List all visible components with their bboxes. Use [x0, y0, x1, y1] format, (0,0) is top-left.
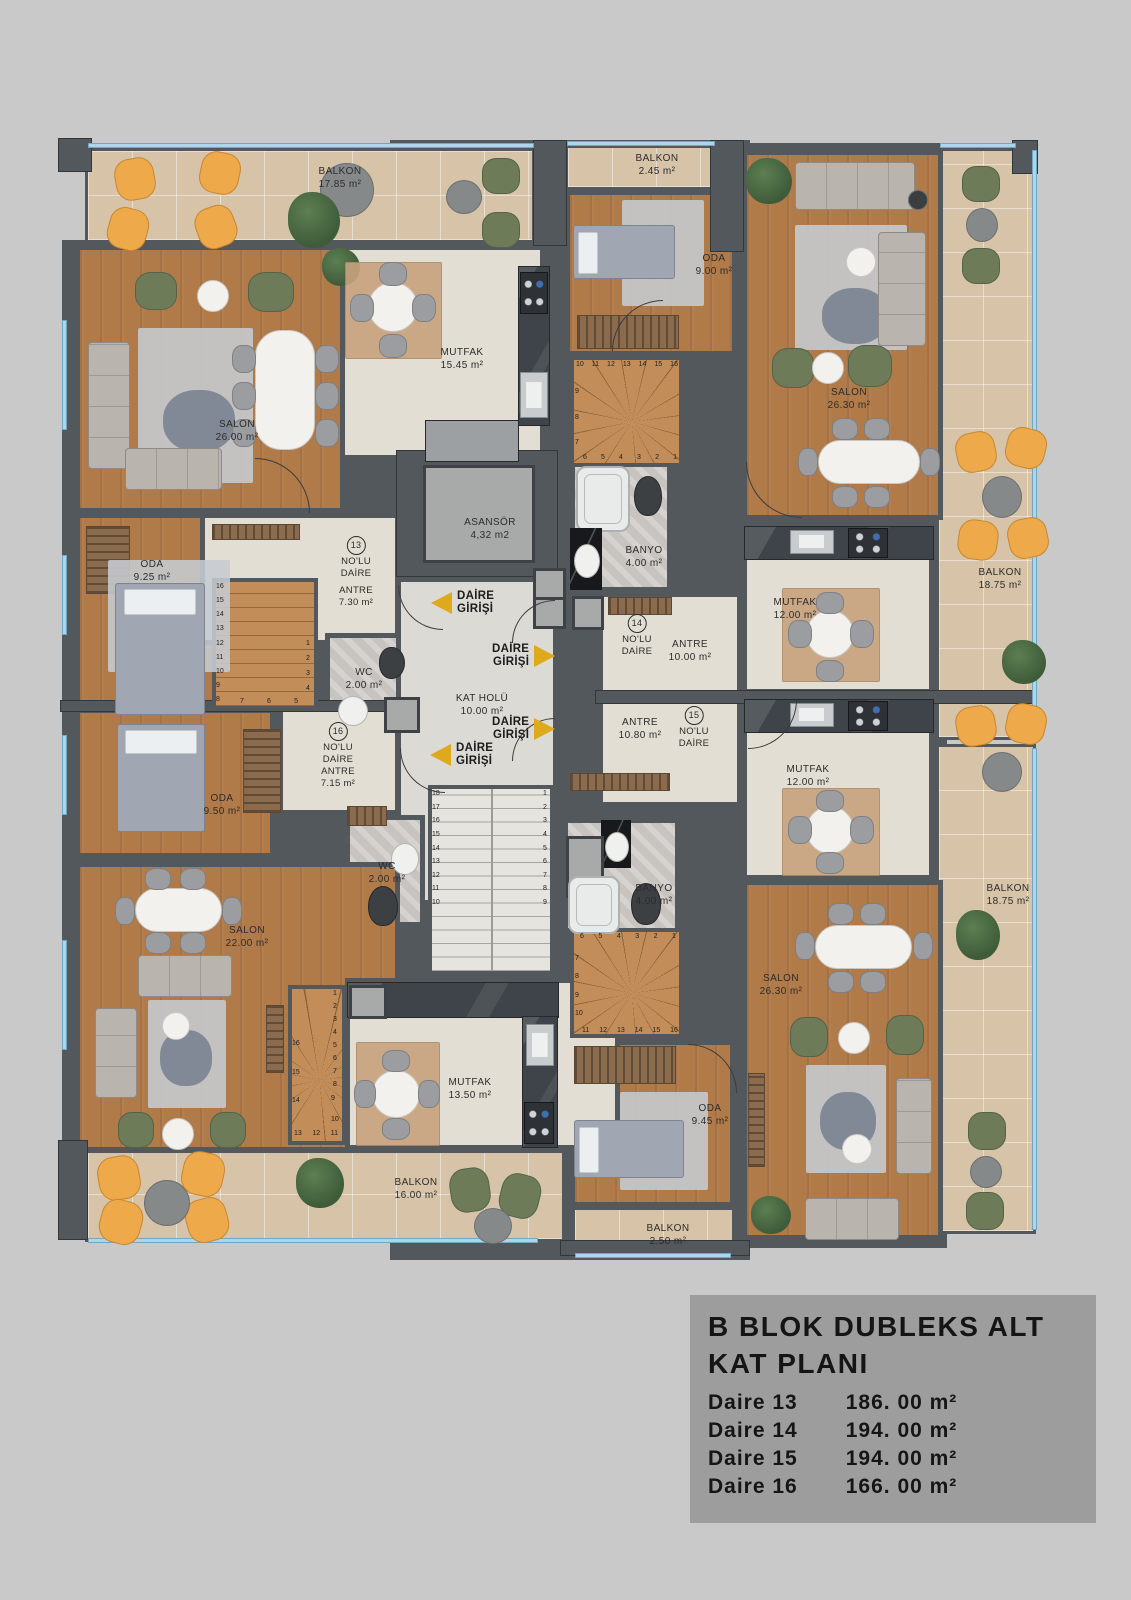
dining-chair: [379, 334, 407, 358]
stair-step-number: 11: [216, 654, 224, 661]
dining-chair: [315, 345, 339, 373]
stair-step-number: 8: [333, 1081, 337, 1088]
dining-chair: [832, 418, 858, 440]
label-salon-16: SALON22.00 m²: [226, 924, 269, 950]
label-kitchen-13: MUTFAK15.45 m²: [441, 346, 484, 372]
dining-chair: [864, 418, 890, 440]
stair-numbers: 10111213141516: [576, 361, 678, 368]
console: [266, 1005, 284, 1073]
label-balcony-13: BALKON17.85 m²: [319, 165, 362, 191]
stair-step-number: 8: [575, 973, 583, 980]
wall-pillar: [58, 1140, 88, 1240]
stair-step-number: 15: [652, 1027, 660, 1034]
dining-chair: [379, 262, 407, 286]
armchair-green: [248, 272, 294, 312]
label-bedroom-13: ODA9.25 m²: [134, 558, 171, 584]
stair-numbers: 910: [331, 1095, 339, 1123]
dining-chair: [145, 868, 171, 890]
rug: [160, 1030, 212, 1086]
washbasin: [574, 544, 600, 578]
sink: [526, 1024, 554, 1066]
legend-table: Daire 13186. 00 m² Daire 14194. 00 m² Da…: [708, 1389, 957, 1501]
bed: [117, 724, 205, 832]
label-wc-16: WC2.00 m²: [369, 860, 406, 886]
label-unit-14: 14 NO'LUDAİRE: [622, 614, 653, 658]
washbasin: [605, 832, 629, 862]
stair-numbers-main-left: 181716151413121110: [432, 790, 440, 906]
duct-shaft: [572, 596, 604, 630]
stair-step-number: 13: [432, 858, 440, 865]
armchair-green: [968, 1112, 1006, 1150]
wall-pillar: [58, 138, 92, 172]
stair-numbers: 161514: [292, 1040, 300, 1104]
entrance-arrow-icon: [430, 744, 451, 766]
bathtub: [568, 876, 620, 934]
label-wc-13: WC2.00 m²: [346, 666, 383, 692]
dining-chair: [913, 932, 933, 960]
window: [567, 141, 715, 146]
dining-table: [135, 888, 222, 932]
dining-table: [815, 925, 912, 969]
dining-chair: [180, 868, 206, 890]
round-table: [970, 1156, 1002, 1188]
stair-step-number: 5: [333, 1042, 337, 1049]
toilet: [379, 647, 405, 679]
window: [62, 555, 67, 635]
dining-chair: [828, 903, 854, 925]
stair-step-number: 12: [607, 361, 615, 368]
stair-step-number: 9: [575, 992, 583, 999]
stair-step-number: 13: [623, 361, 631, 368]
sofa: [896, 1078, 932, 1174]
label-bathroom-15: BANYO4.00 m²: [635, 882, 672, 908]
kitchen-table: [372, 1070, 420, 1118]
stair-numbers: 1615141312111098: [216, 583, 224, 703]
label-hall-15: ANTRE10.80 m²: [619, 716, 662, 742]
sofa: [125, 448, 222, 490]
stair-step-number: 6: [333, 1055, 337, 1062]
stair-step-number: 7: [333, 1068, 337, 1075]
entrance-arrow-icon: [431, 592, 452, 614]
armchair-green: [886, 1015, 924, 1055]
apartment-entrance-15: DAİREGİRİŞİ: [492, 716, 555, 742]
stair-step-number: 4: [617, 933, 621, 940]
stair-step-number: 7: [543, 872, 547, 879]
stair-step-number: 2: [306, 655, 310, 662]
stair-step-number: 14: [639, 361, 647, 368]
stair-step-number: 10: [432, 899, 440, 906]
apartment-entrance-16: DAİREGİRİŞİ: [430, 742, 493, 768]
stair-step-number: 16: [432, 817, 440, 824]
wall-pillar: [533, 140, 567, 246]
round-table: [446, 180, 482, 214]
dining-table: [255, 330, 315, 450]
armchair-green: [210, 1112, 246, 1148]
wardrobe: [574, 1046, 676, 1084]
sink: [790, 530, 834, 554]
dining-chair: [828, 971, 854, 993]
stair-step-number: 2: [655, 454, 659, 461]
toilet: [368, 886, 398, 926]
stair-step-number: 4: [619, 454, 623, 461]
stair-numbers: 78910: [575, 955, 583, 1017]
stair-step-number: 11: [432, 885, 440, 892]
dining-chair: [860, 903, 886, 925]
stair-step-number: 16: [216, 583, 224, 590]
label-balcony-15-right: BALKON18.75 m²: [987, 882, 1030, 908]
stair-step-number: 14: [292, 1097, 300, 1104]
label-balcony-15-bottom: BALKON2.50 m²: [647, 1222, 690, 1248]
duct-shaft: [533, 568, 566, 600]
stair-step-number: 2: [543, 804, 547, 811]
window: [575, 1253, 731, 1258]
dining-chair: [315, 419, 339, 447]
stair-numbers: 12345678: [333, 990, 337, 1088]
stair-step-number: 9: [575, 388, 579, 395]
window: [88, 143, 534, 148]
dining-chair: [795, 932, 815, 960]
stair-step-number: 8: [216, 696, 224, 703]
stair-step-number: 15: [654, 361, 662, 368]
stair-numbers: 654321: [580, 933, 676, 940]
dining-chair: [115, 897, 135, 925]
dining-chair: [788, 620, 812, 648]
stair-numbers: 654321: [583, 454, 677, 461]
bed: [574, 1120, 684, 1178]
dining-chair: [832, 486, 858, 508]
label-salon-15: SALON26.30 m²: [760, 972, 803, 998]
stair-step-number: 10: [575, 1010, 583, 1017]
stair-step-number: 6: [267, 698, 271, 705]
stair-step-number: 10: [576, 361, 584, 368]
dining-chair: [850, 816, 874, 844]
legend-title: B BLOK DUBLEKS ALT KAT PLANI: [708, 1309, 1078, 1383]
sofa: [878, 232, 926, 346]
label-bedroom-15: ODA9.45 m²: [692, 1102, 729, 1128]
label-balcony-14-right: BALKON18.75 m²: [979, 566, 1022, 592]
label-kitchen-16: MUTFAK13.50 m²: [449, 1076, 492, 1102]
side-table: [908, 190, 928, 210]
dining-chair: [418, 1080, 440, 1108]
dining-chair: [816, 790, 844, 812]
dining-chair: [788, 816, 812, 844]
dining-chair: [816, 660, 844, 682]
stair-step-number: 12: [432, 872, 440, 879]
toilet: [634, 476, 662, 516]
label-bathroom-14: BANYO4.00 m²: [625, 544, 662, 570]
stair-step-number: 15: [216, 597, 224, 604]
round-table: [982, 752, 1022, 792]
stair-step-number: 6: [580, 933, 584, 940]
stair-step-number: 13: [294, 1130, 302, 1137]
dining-table: [818, 440, 920, 484]
cabinet: [384, 697, 420, 733]
dining-chair: [920, 448, 940, 476]
stair-step-number: 13: [216, 625, 224, 632]
stair-step-number: 12: [599, 1027, 607, 1034]
stove: [520, 272, 548, 314]
round-table: [966, 208, 998, 242]
dining-chair: [850, 620, 874, 648]
dining-chair: [412, 294, 436, 322]
label-kitchen-15: MUTFAK12.00 m²: [787, 763, 830, 789]
stair-step-number: 17: [432, 804, 440, 811]
label-unit-13: 13 NO'LUDAİRE ANTRE7.30 m²: [339, 536, 373, 609]
window: [1032, 748, 1037, 1230]
stair-step-number: 1: [543, 790, 547, 797]
stair-step-number: 9: [216, 682, 224, 689]
stair-step-number: 5: [601, 454, 605, 461]
dining-chair: [222, 897, 242, 925]
window: [62, 320, 67, 430]
side-table: [197, 280, 229, 312]
dining-chair: [816, 852, 844, 874]
wardrobe: [243, 729, 281, 813]
stair-step-number: 7: [240, 698, 244, 705]
stair-step-number: 1: [306, 640, 310, 647]
label-salon-14: SALON26.30 m²: [828, 386, 871, 412]
stair-step-number: 10: [216, 668, 224, 675]
dining-chair: [382, 1118, 410, 1140]
plant: [956, 910, 1000, 960]
console: [748, 1073, 765, 1167]
stair-step-number: 1: [333, 990, 337, 997]
stair-step-number: 3: [543, 817, 547, 824]
armchair-green: [966, 1192, 1004, 1230]
dining-chair: [350, 294, 374, 322]
stair-step-number: 14: [635, 1027, 643, 1034]
sofa: [795, 162, 915, 210]
label-balcony-14-top: BALKON2.45 m²: [636, 152, 679, 178]
dining-chair: [315, 382, 339, 410]
armchair-green: [790, 1017, 828, 1057]
plant: [296, 1158, 344, 1208]
dining-chair: [354, 1080, 376, 1108]
dining-chair: [864, 486, 890, 508]
stair-numbers-main-right: 123456789: [543, 790, 547, 906]
stair-step-number: 9: [331, 1095, 339, 1102]
sofa: [95, 1008, 137, 1098]
legend-row: Daire 15194. 00 m²: [708, 1445, 957, 1473]
stair-numbers: 765: [240, 698, 298, 705]
coffee-table: [846, 247, 876, 277]
doormat: [347, 806, 387, 826]
stair-step-number: 16: [670, 361, 678, 368]
coffee-table: [162, 1012, 190, 1040]
armchair-green: [962, 166, 1000, 202]
legend-row: Daire 16166. 00 m²: [708, 1473, 957, 1501]
stair-step-number: 10: [331, 1116, 339, 1123]
window: [88, 1238, 538, 1243]
coffee-table: [842, 1134, 872, 1164]
sofa: [805, 1198, 899, 1240]
stair-step-number: 13: [617, 1027, 625, 1034]
plant: [288, 192, 340, 248]
stair-step-number: 3: [637, 454, 641, 461]
staircase-14: [570, 356, 683, 467]
wall-pillar: [710, 140, 744, 252]
dining-chair: [232, 382, 256, 410]
stair-step-number: 2: [654, 933, 658, 940]
stair-step-number: 11: [592, 361, 599, 368]
stair-step-number: 4: [306, 685, 310, 692]
shower: [576, 466, 630, 532]
stove: [848, 528, 888, 558]
stair-step-number: 12: [216, 640, 224, 647]
stair-step-number: 3: [635, 933, 639, 940]
stair-step-number: 9: [543, 899, 547, 906]
bed: [573, 225, 675, 279]
stair-step-number: 7: [575, 439, 579, 446]
stair-step-number: 1: [672, 933, 676, 940]
sofa: [138, 955, 232, 997]
dining-chair: [816, 592, 844, 614]
sink: [790, 703, 834, 727]
stair-step-number: 3: [333, 1016, 337, 1023]
stair-step-number: 7: [575, 955, 583, 962]
bed: [115, 583, 205, 715]
armchair-green: [962, 248, 1000, 284]
stair-step-number: 16: [670, 1027, 678, 1034]
side-table: [162, 1118, 194, 1150]
stair-step-number: 4: [333, 1029, 337, 1036]
stair-step-number: 16: [292, 1040, 300, 1047]
side-table: [838, 1022, 870, 1054]
stair-step-number: 4: [543, 831, 547, 838]
stair-step-number: 5: [598, 933, 602, 940]
label-salon-13: SALON26.00 m²: [216, 418, 259, 444]
label-balcony-16: BALKON16.00 m²: [395, 1176, 438, 1202]
kitchen-island: [425, 420, 519, 462]
doormat: [570, 773, 670, 791]
armchair-green: [482, 158, 520, 194]
apartment-entrance-14: DAİREGİRİŞİ: [492, 643, 555, 669]
stair-numbers: 131211: [294, 1130, 338, 1137]
legend-row: Daire 14194. 00 m²: [708, 1417, 957, 1445]
armchair-green: [482, 212, 520, 248]
armchair-green: [772, 348, 814, 388]
staircase-15: [570, 928, 683, 1038]
armchair-green: [848, 345, 892, 387]
main-staircase: [428, 785, 554, 975]
round-table: [982, 476, 1022, 518]
round-table: [474, 1208, 512, 1244]
doormat: [608, 597, 672, 615]
label-bedroom-16: ODA9.50 m²: [204, 792, 241, 818]
stair-step-number: 1: [673, 454, 677, 461]
stair-step-number: 8: [575, 414, 579, 421]
dining-chair: [232, 345, 256, 373]
stair-step-number: 5: [543, 845, 547, 852]
stair-step-number: 8: [543, 885, 547, 892]
stair-step-number: 3: [306, 670, 310, 677]
stair-step-number: 15: [432, 831, 440, 838]
cabinet: [349, 985, 387, 1019]
stair-step-number: 2: [333, 1003, 337, 1010]
kitchen-counter: [744, 526, 934, 560]
stair-numbers: 1234: [306, 640, 310, 692]
apartment-entrance-13: DAİREGİRİŞİ: [431, 590, 494, 616]
kitchen-table: [368, 282, 418, 332]
stair-step-number: 11: [582, 1027, 589, 1034]
dining-chair: [145, 932, 171, 954]
legend-row: Daire 13186. 00 m²: [708, 1389, 957, 1417]
elevator-cab: [423, 465, 535, 563]
label-kitchen-14: MUTFAK12.00 m²: [774, 596, 817, 622]
armchair-green: [118, 1112, 154, 1148]
elevator-shaft: [396, 450, 558, 577]
stair-step-number: 12: [312, 1130, 320, 1137]
window: [62, 940, 67, 1050]
window: [62, 735, 67, 815]
stove: [524, 1102, 554, 1144]
plan-legend: B BLOK DUBLEKS ALT KAT PLANI Daire 13186…: [690, 1295, 1096, 1523]
stair-numbers: 987: [575, 388, 579, 446]
entrance-arrow-icon: [534, 718, 555, 740]
stove: [848, 701, 888, 731]
plant: [1002, 640, 1046, 684]
plant: [746, 158, 792, 204]
dining-chair: [382, 1050, 410, 1072]
stair-step-number: 14: [432, 845, 440, 852]
label-elevator: ASANSÖR4,32 m2: [464, 516, 516, 542]
sofa: [88, 342, 130, 469]
dining-chair: [860, 971, 886, 993]
armchair-green: [135, 272, 177, 310]
doormat: [212, 524, 300, 540]
stair-step-number: 14: [216, 611, 224, 618]
round-table: [144, 1180, 190, 1226]
label-floor-hall: KAT HOLÜ10.00 m²: [456, 692, 508, 718]
label-hall-14: ANTRE10.00 m²: [669, 638, 712, 664]
stair-step-number: 6: [543, 858, 547, 865]
side-table: [812, 352, 844, 384]
stair-step-number: 15: [292, 1069, 300, 1076]
entrance-arrow-icon: [534, 645, 555, 667]
dining-chair: [180, 932, 206, 954]
stair-step-number: 5: [294, 698, 298, 705]
window: [940, 143, 1016, 148]
plant: [751, 1196, 791, 1234]
stair-step-number: 11: [331, 1130, 338, 1137]
label-unit-15: 15 NO'LUDAİRE: [679, 706, 710, 750]
label-unit-16: 16 NO'LUDAİRE ANTRE7.15 m²: [321, 722, 355, 790]
stair-numbers: 111213141516: [582, 1027, 678, 1034]
kitchen-table: [806, 806, 854, 854]
stair-step-number: 6: [583, 454, 587, 461]
floor-plan-canvas: 181716151413121110 123456789 10111213141…: [0, 0, 1131, 1600]
sink: [520, 372, 548, 418]
label-bedroom-14: ODA9.00 m²: [696, 252, 733, 278]
